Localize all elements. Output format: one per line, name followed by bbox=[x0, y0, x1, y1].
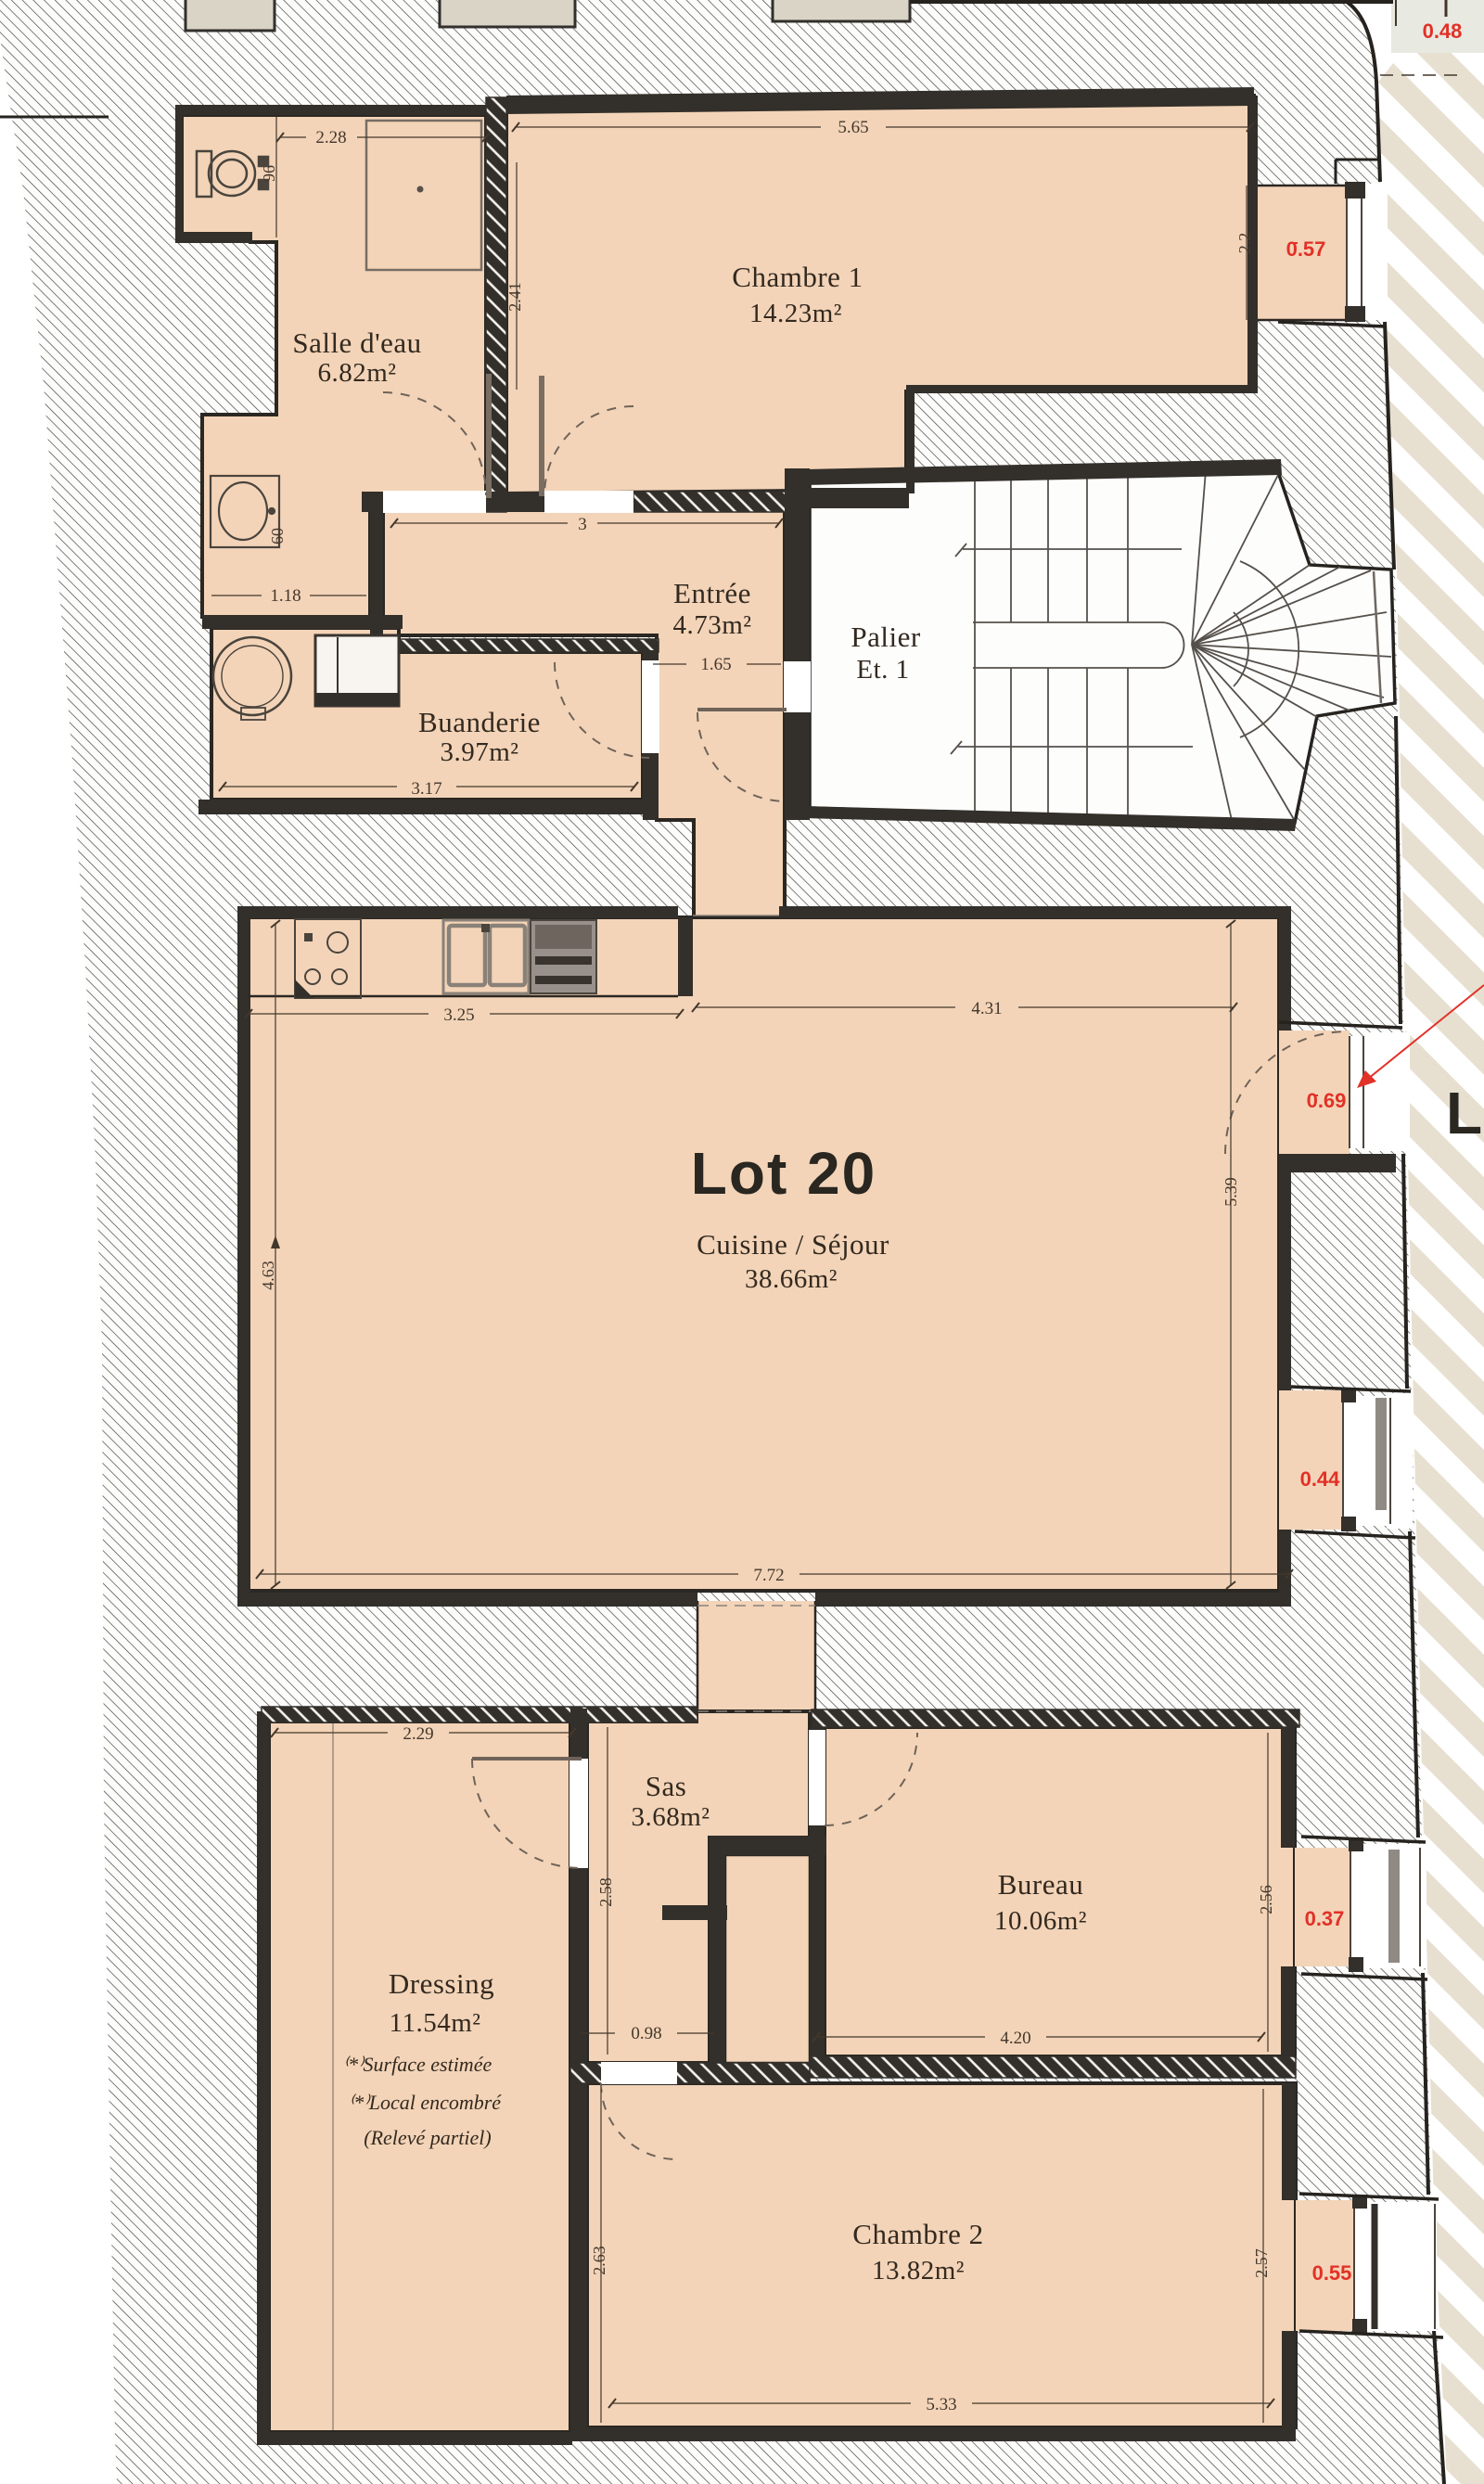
svg-text:2.63: 2.63 bbox=[590, 2246, 608, 2275]
svg-text:3: 3 bbox=[578, 515, 587, 534]
svg-text:Et. 1: Et. 1 bbox=[856, 655, 909, 685]
svg-text:2.2: 2.2 bbox=[1235, 233, 1254, 254]
svg-text:1.65: 1.65 bbox=[700, 655, 731, 674]
svg-text:0.37: 0.37 bbox=[1305, 1907, 1345, 1930]
svg-text:Salle d'eau: Salle d'eau bbox=[292, 327, 421, 359]
svg-text:Lot 2: Lot 2 bbox=[1446, 1080, 1484, 1146]
svg-text:2.29: 2.29 bbox=[403, 1724, 433, 1744]
svg-text:3.97m²: 3.97m² bbox=[440, 737, 518, 767]
svg-text:0.69: 0.69 bbox=[1307, 1089, 1347, 1112]
svg-text:Palier: Palier bbox=[851, 621, 920, 653]
svg-text:96: 96 bbox=[260, 165, 278, 182]
svg-text:2.28: 2.28 bbox=[315, 128, 346, 147]
svg-text:Lot 20: Lot 20 bbox=[691, 1140, 876, 1207]
svg-text:4.20: 4.20 bbox=[1000, 2029, 1030, 2048]
svg-text:7.72: 7.72 bbox=[753, 1566, 784, 1585]
svg-text:14.23m²: 14.23m² bbox=[749, 299, 842, 328]
svg-text:0.48: 0.48 bbox=[1423, 19, 1463, 43]
svg-text:0.44: 0.44 bbox=[1300, 1467, 1341, 1491]
svg-text:⁽*⁾Surface estimée: ⁽*⁾Surface estimée bbox=[343, 2053, 493, 2076]
svg-text:5.33: 5.33 bbox=[926, 2395, 956, 2414]
svg-text:2.41: 2.41 bbox=[505, 282, 524, 312]
svg-text:Entrée: Entrée bbox=[673, 577, 751, 609]
svg-text:Cuisine / Séjour: Cuisine / Séjour bbox=[697, 1228, 889, 1261]
svg-text:3.68m²: 3.68m² bbox=[631, 1802, 710, 1832]
svg-text:4.73m²: 4.73m² bbox=[672, 610, 751, 640]
svg-text:38.66m²: 38.66m² bbox=[745, 1264, 838, 1294]
svg-text:2.57: 2.57 bbox=[1252, 2248, 1271, 2278]
svg-text:⁽*⁾Local encombré: ⁽*⁾Local encombré bbox=[349, 2091, 502, 2114]
svg-text:1.18: 1.18 bbox=[270, 586, 301, 606]
svg-text:0.57: 0.57 bbox=[1286, 237, 1326, 261]
svg-text:Sas: Sas bbox=[646, 1770, 687, 1802]
svg-text:2.58: 2.58 bbox=[596, 1877, 615, 1907]
svg-text:5.65: 5.65 bbox=[838, 118, 868, 137]
svg-text:5.39: 5.39 bbox=[1222, 1177, 1240, 1207]
svg-text:Dressing: Dressing bbox=[389, 1967, 494, 2000]
svg-text:(Relevé partiel): (Relevé partiel) bbox=[364, 2126, 491, 2149]
svg-text:4.31: 4.31 bbox=[971, 999, 1002, 1018]
svg-text:6.82m²: 6.82m² bbox=[317, 358, 396, 388]
svg-text:60: 60 bbox=[268, 528, 287, 544]
svg-text:Chambre 1: Chambre 1 bbox=[732, 261, 863, 293]
svg-text:11.54m²: 11.54m² bbox=[390, 2008, 481, 2038]
svg-text:3.17: 3.17 bbox=[411, 779, 441, 799]
svg-text:Buanderie: Buanderie bbox=[418, 706, 541, 738]
svg-text:10.06m²: 10.06m² bbox=[994, 1906, 1087, 1936]
svg-text:Bureau: Bureau bbox=[998, 1868, 1084, 1901]
svg-text:0.98: 0.98 bbox=[631, 2024, 661, 2043]
svg-text:0.55: 0.55 bbox=[1312, 2261, 1352, 2285]
svg-text:3.25: 3.25 bbox=[443, 1005, 474, 1025]
svg-text:2.56: 2.56 bbox=[1257, 1885, 1275, 1914]
svg-text:4.63: 4.63 bbox=[259, 1261, 277, 1290]
svg-text:13.82m²: 13.82m² bbox=[872, 2256, 965, 2286]
svg-text:Chambre 2: Chambre 2 bbox=[852, 2218, 983, 2250]
